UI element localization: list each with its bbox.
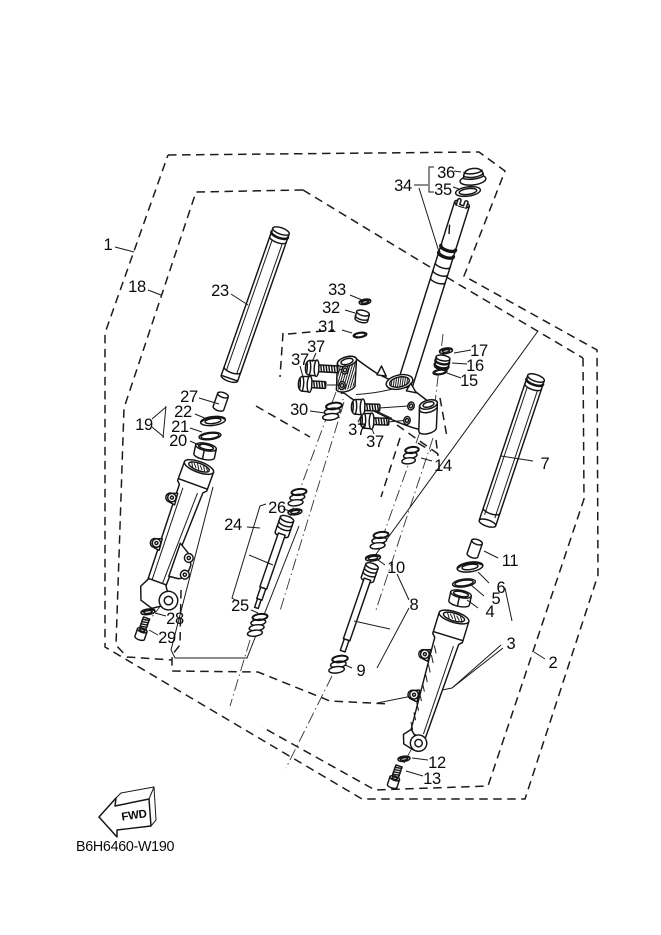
svg-text:18: 18 bbox=[128, 278, 146, 296]
svg-text:10: 10 bbox=[387, 559, 405, 577]
svg-text:2: 2 bbox=[549, 654, 558, 672]
svg-text:29: 29 bbox=[158, 629, 176, 647]
svg-text:24: 24 bbox=[224, 516, 242, 534]
svg-text:4: 4 bbox=[486, 603, 495, 621]
svg-text:36: 36 bbox=[437, 164, 455, 182]
svg-text:25: 25 bbox=[231, 597, 249, 615]
svg-text:31: 31 bbox=[318, 318, 336, 336]
svg-text:28: 28 bbox=[166, 610, 184, 628]
svg-text:1: 1 bbox=[104, 236, 113, 254]
svg-text:8: 8 bbox=[410, 596, 419, 614]
svg-text:14: 14 bbox=[434, 457, 452, 475]
svg-text:3: 3 bbox=[507, 635, 516, 653]
svg-text:15: 15 bbox=[460, 372, 478, 390]
svg-text:37: 37 bbox=[366, 433, 384, 451]
svg-text:26: 26 bbox=[268, 499, 286, 517]
svg-text:7: 7 bbox=[541, 455, 550, 473]
svg-text:23: 23 bbox=[211, 282, 229, 300]
svg-text:11: 11 bbox=[502, 552, 519, 570]
svg-text:35: 35 bbox=[434, 181, 452, 199]
svg-text:19: 19 bbox=[135, 416, 153, 434]
svg-text:30: 30 bbox=[290, 401, 308, 419]
svg-text:33: 33 bbox=[328, 281, 346, 299]
svg-text:20: 20 bbox=[169, 432, 187, 450]
svg-text:34: 34 bbox=[394, 177, 412, 195]
svg-text:32: 32 bbox=[322, 299, 340, 317]
svg-text:B6H6460-W190: B6H6460-W190 bbox=[76, 839, 174, 855]
svg-text:37: 37 bbox=[348, 421, 366, 439]
svg-text:13: 13 bbox=[423, 770, 441, 788]
svg-text:9: 9 bbox=[357, 662, 366, 680]
